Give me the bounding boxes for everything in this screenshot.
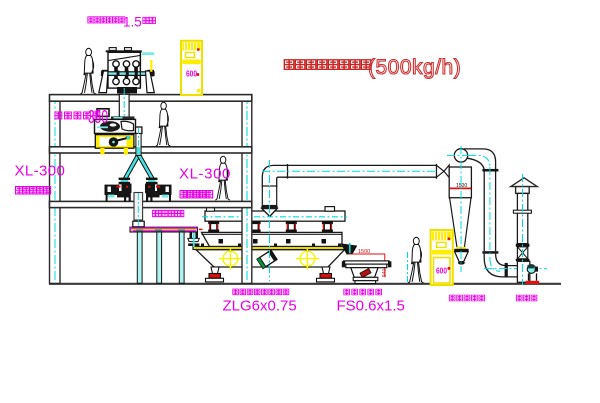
svg-text:1500: 1500 <box>358 249 370 255</box>
svg-text:ZLG6x0.75: ZLG6x0.75 <box>223 298 297 315</box>
svg-text:XL-300: XL-300 <box>179 165 231 182</box>
svg-text:540: 540 <box>382 268 388 277</box>
svg-text:XL-300: XL-300 <box>15 163 66 180</box>
svg-text:1500: 1500 <box>456 183 467 189</box>
svg-text:1.5: 1.5 <box>123 15 142 30</box>
svg-text:600: 600 <box>186 70 197 79</box>
svg-text:600: 600 <box>436 267 447 276</box>
svg-text:350: 350 <box>88 107 108 127</box>
svg-text:FS0.6x1.5: FS0.6x1.5 <box>337 298 405 315</box>
svg-text:(500kg/h): (500kg/h) <box>368 56 461 79</box>
